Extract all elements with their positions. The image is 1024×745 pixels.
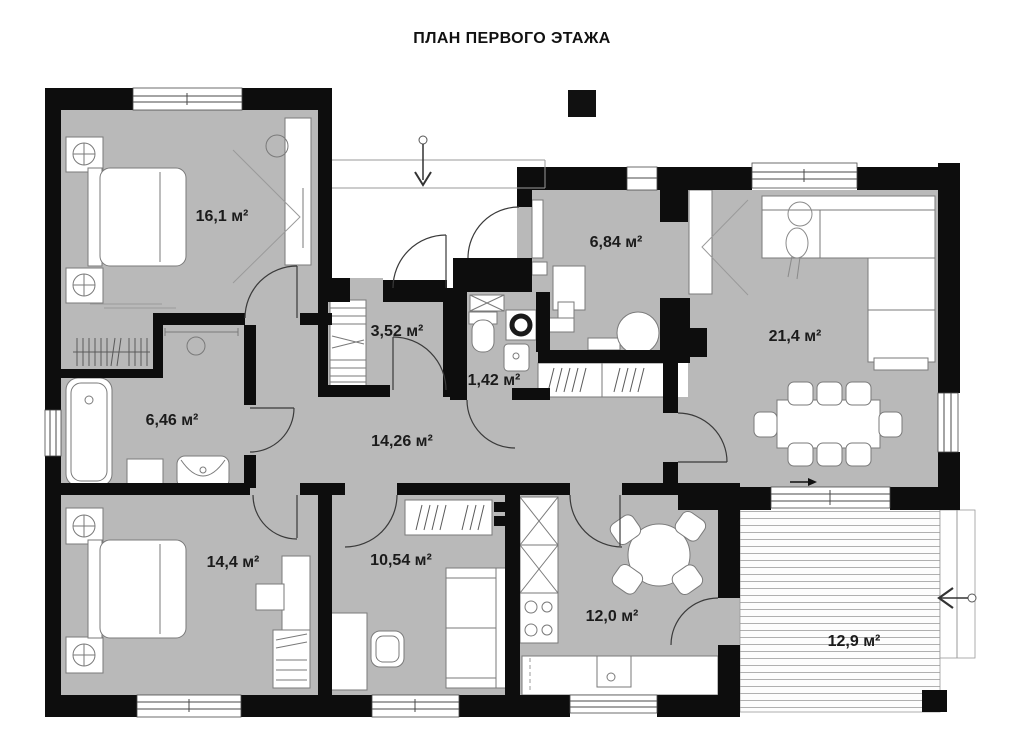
room-label-terrace: 12,9 м²	[828, 633, 881, 650]
kitchen-counter	[522, 656, 718, 695]
water-tank	[617, 312, 659, 354]
floor-hallway	[318, 397, 663, 483]
chair	[846, 443, 871, 466]
chair	[817, 443, 842, 466]
room-label-bedroom-2: 14,4 м²	[207, 554, 260, 571]
chair	[817, 382, 842, 405]
chair	[879, 412, 902, 437]
cabinet	[127, 459, 163, 487]
room-label-bedroom-1: 16,1 м²	[196, 208, 249, 225]
dining-table	[777, 400, 880, 448]
terrace-post	[922, 690, 947, 712]
chair	[754, 412, 777, 437]
floor-bathroom	[157, 325, 244, 378]
wc-sink	[504, 344, 529, 371]
desk	[282, 556, 310, 634]
page-title: ПЛАН ПЕРВОГО ЭТАЖА	[0, 30, 1024, 48]
room-label-bathroom: 6,46 м²	[146, 412, 199, 429]
toilet	[472, 320, 494, 352]
room-label-hallway: 14,26 м²	[371, 433, 433, 450]
hall-wardrobe	[538, 363, 667, 397]
desk	[328, 613, 367, 690]
stove	[520, 593, 558, 643]
chair	[846, 382, 871, 405]
desk-chair	[256, 584, 284, 610]
room-label-closet: 3,52 м²	[371, 323, 424, 340]
wardrobe	[273, 630, 310, 688]
closet-shelving	[330, 300, 366, 388]
wardrobe	[285, 118, 311, 265]
chair	[788, 443, 813, 466]
double-bed	[100, 540, 186, 638]
wardrobe	[689, 190, 712, 294]
room-label-office: 10,54 м²	[370, 552, 432, 569]
window	[938, 393, 958, 452]
chimney-marker	[568, 90, 596, 117]
floor-living-room	[678, 397, 688, 487]
double-bed	[100, 168, 186, 266]
bench	[588, 338, 620, 350]
room-label-boiler: 6,84 м²	[590, 234, 643, 251]
window	[45, 410, 61, 456]
wardrobe	[405, 500, 492, 535]
sofa	[762, 196, 935, 258]
room-label-wc: 1,42 м²	[468, 372, 521, 389]
terrace-deck	[740, 505, 975, 712]
window	[570, 695, 657, 713]
floor-plan-page: ПЛАН ПЕРВОГО ЭТАЖА	[0, 0, 1024, 745]
bathtub	[66, 378, 112, 486]
room-label-living: 21,4 м²	[769, 328, 822, 345]
chair	[788, 382, 813, 405]
floor-hallway	[256, 325, 318, 483]
floor-plan-drawing: 16,1 м² 3,52 м² 6,84 м² 21,4 м² 1,42 м² …	[0, 0, 1024, 745]
room-label-kitchen: 12,0 м²	[586, 608, 639, 625]
floor-niche	[660, 222, 688, 298]
